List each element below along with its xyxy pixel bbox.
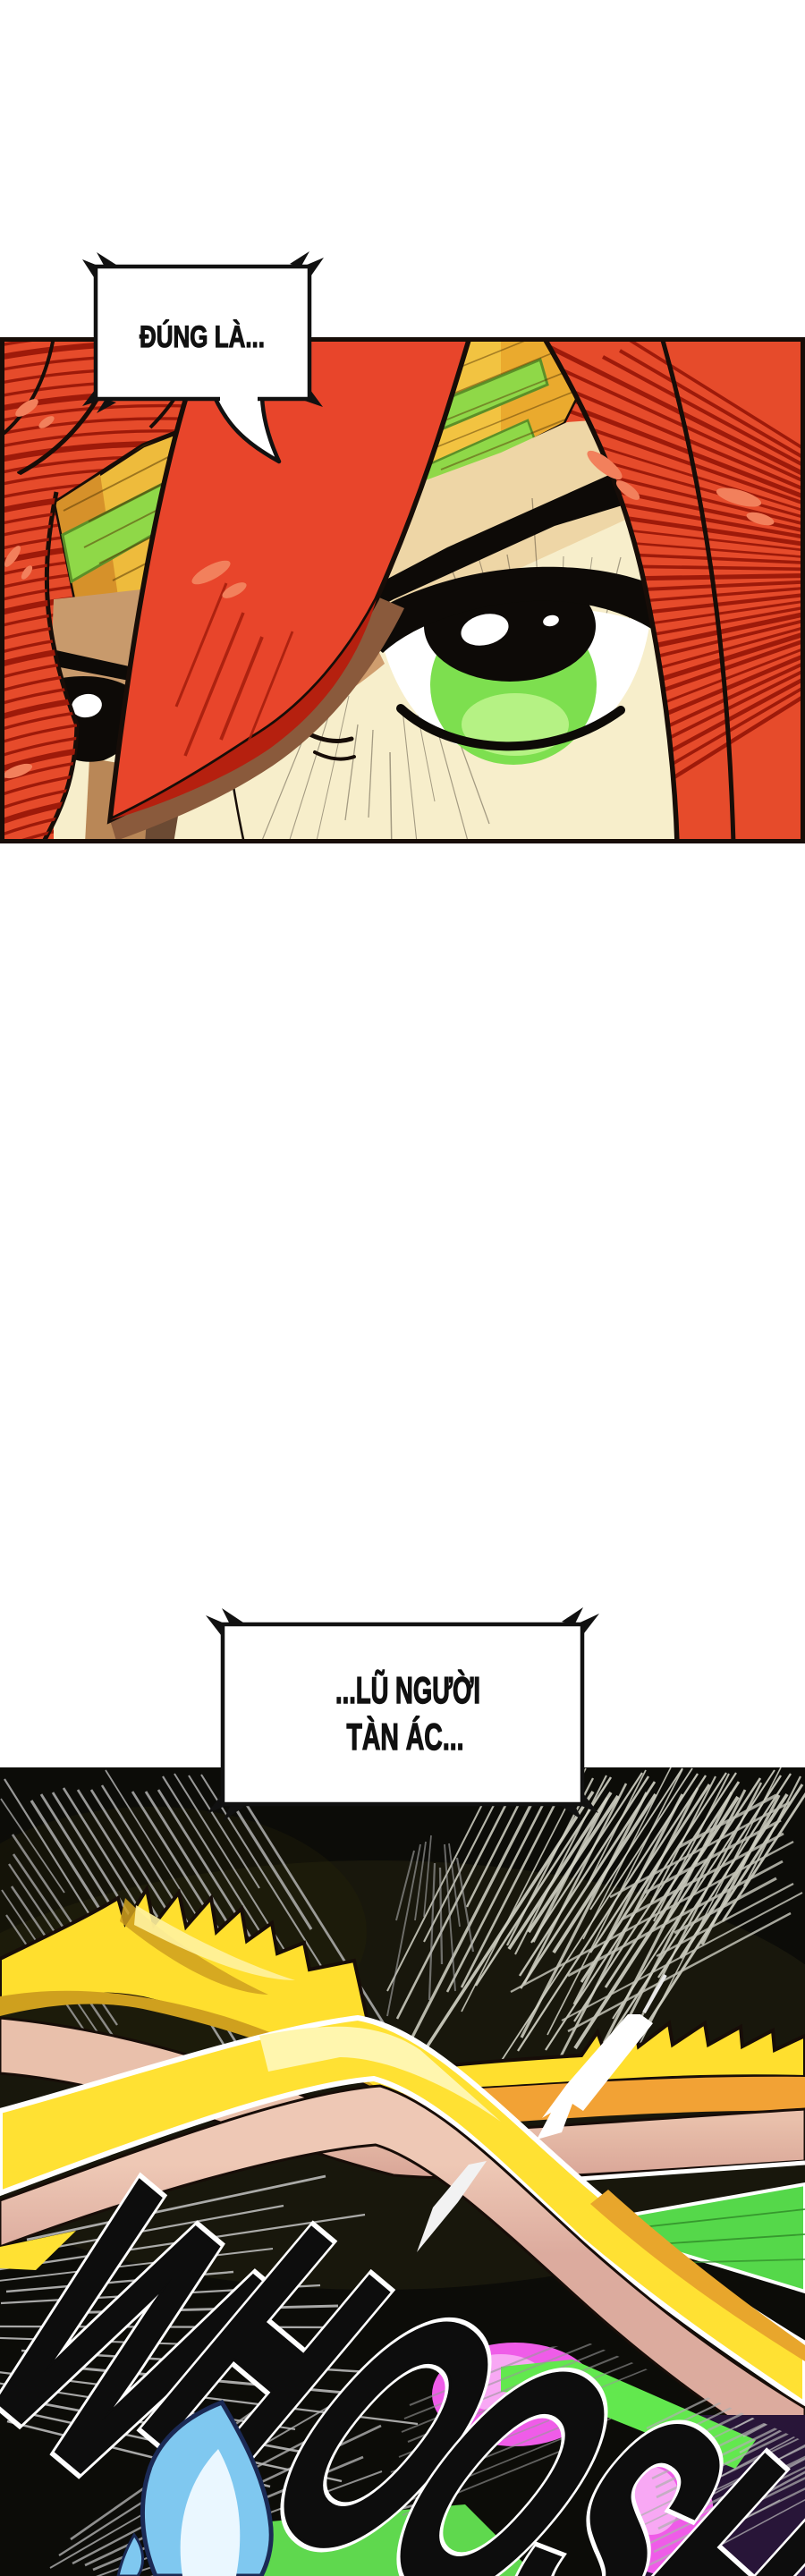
svg-text:...LŨ NGƯỜI: ...LŨ NGƯỜI [335,1668,480,1711]
svg-text:ĐÚNG LÀ...: ĐÚNG LÀ... [140,320,265,354]
svg-text:TÀN ÁC...: TÀN ÁC... [347,1716,464,1758]
